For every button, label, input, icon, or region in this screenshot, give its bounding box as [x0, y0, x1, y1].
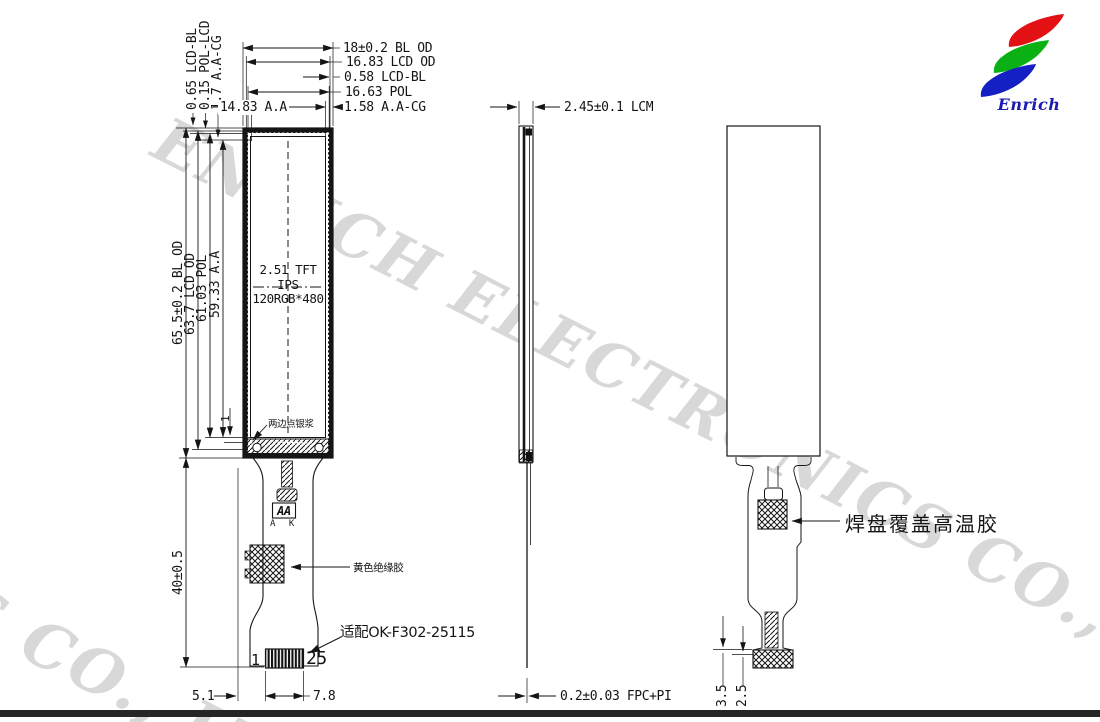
fpc-connector-front [266, 649, 304, 668]
dim-back-2-5: 2.5 [735, 685, 750, 707]
yellow-tape-note: 黄色绝缘胶 [353, 560, 404, 575]
dim-edge-1: 1 [218, 416, 233, 422]
enrich-logo [981, 14, 1064, 97]
solder-pad-tape-note: 焊盘覆盖高温胶 [845, 508, 999, 537]
dim-fpc-length: 40±0.5 [171, 550, 186, 595]
connector-model-note: 适配OK-F302-25115 [340, 621, 475, 642]
diode-aa-label: AA [273, 504, 296, 518]
dim-offset-5-1: 5.1 [192, 689, 214, 704]
dim-bl-od: 18±0.2 BL OD [343, 41, 432, 56]
gap-label-aa-cg: 1.7 A.A-CG [210, 36, 225, 110]
front-view [176, 42, 350, 701]
dim-aa: 14.83 A.A [218, 100, 289, 115]
dim-aa-v: 59.33 A.A [208, 251, 223, 318]
display-resolution-label: 120RGB*480 [250, 291, 326, 306]
dim-back-3-5: 3.5 [715, 685, 730, 707]
solder-pad-tape [758, 500, 787, 529]
dim-lcm-thickness: 2.45±0.1 LCM [564, 100, 653, 115]
dim-lcd-bl: 0.58 LCD-BL [344, 70, 426, 85]
pin-1-label: 1 [251, 651, 260, 669]
dim-fpc-thickness: 0.2±0.03 FPC+PI [560, 689, 671, 704]
display-size-label: 2.51 TFT [250, 262, 326, 277]
display-type-label: IPS [250, 277, 326, 292]
dim-lcd-od: 16.83 LCD OD [346, 55, 435, 70]
yellow-tape-block [250, 545, 284, 583]
side-view [490, 101, 560, 703]
back-view [713, 126, 840, 686]
silver-paste-note: 两边点银浆 [268, 416, 314, 430]
dim-aa-cg: 1.58 A.A-CG [344, 100, 426, 115]
logo-wordmark: Enrich [993, 95, 1065, 114]
dim-connector-7-8: 7.8 [313, 689, 335, 704]
fpc-connector-back [753, 650, 793, 668]
dim-pol: 16.63 POL [345, 85, 412, 100]
title-block-border [0, 710, 1100, 717]
diode-ak-label: A K [270, 519, 298, 529]
drawing-linework [0, 0, 1100, 722]
drawing-sheet: ENRICH ELECTRONICS CO., LTD NICS CO., LT… [0, 0, 1100, 722]
pin-25-label: 25 [306, 648, 327, 669]
